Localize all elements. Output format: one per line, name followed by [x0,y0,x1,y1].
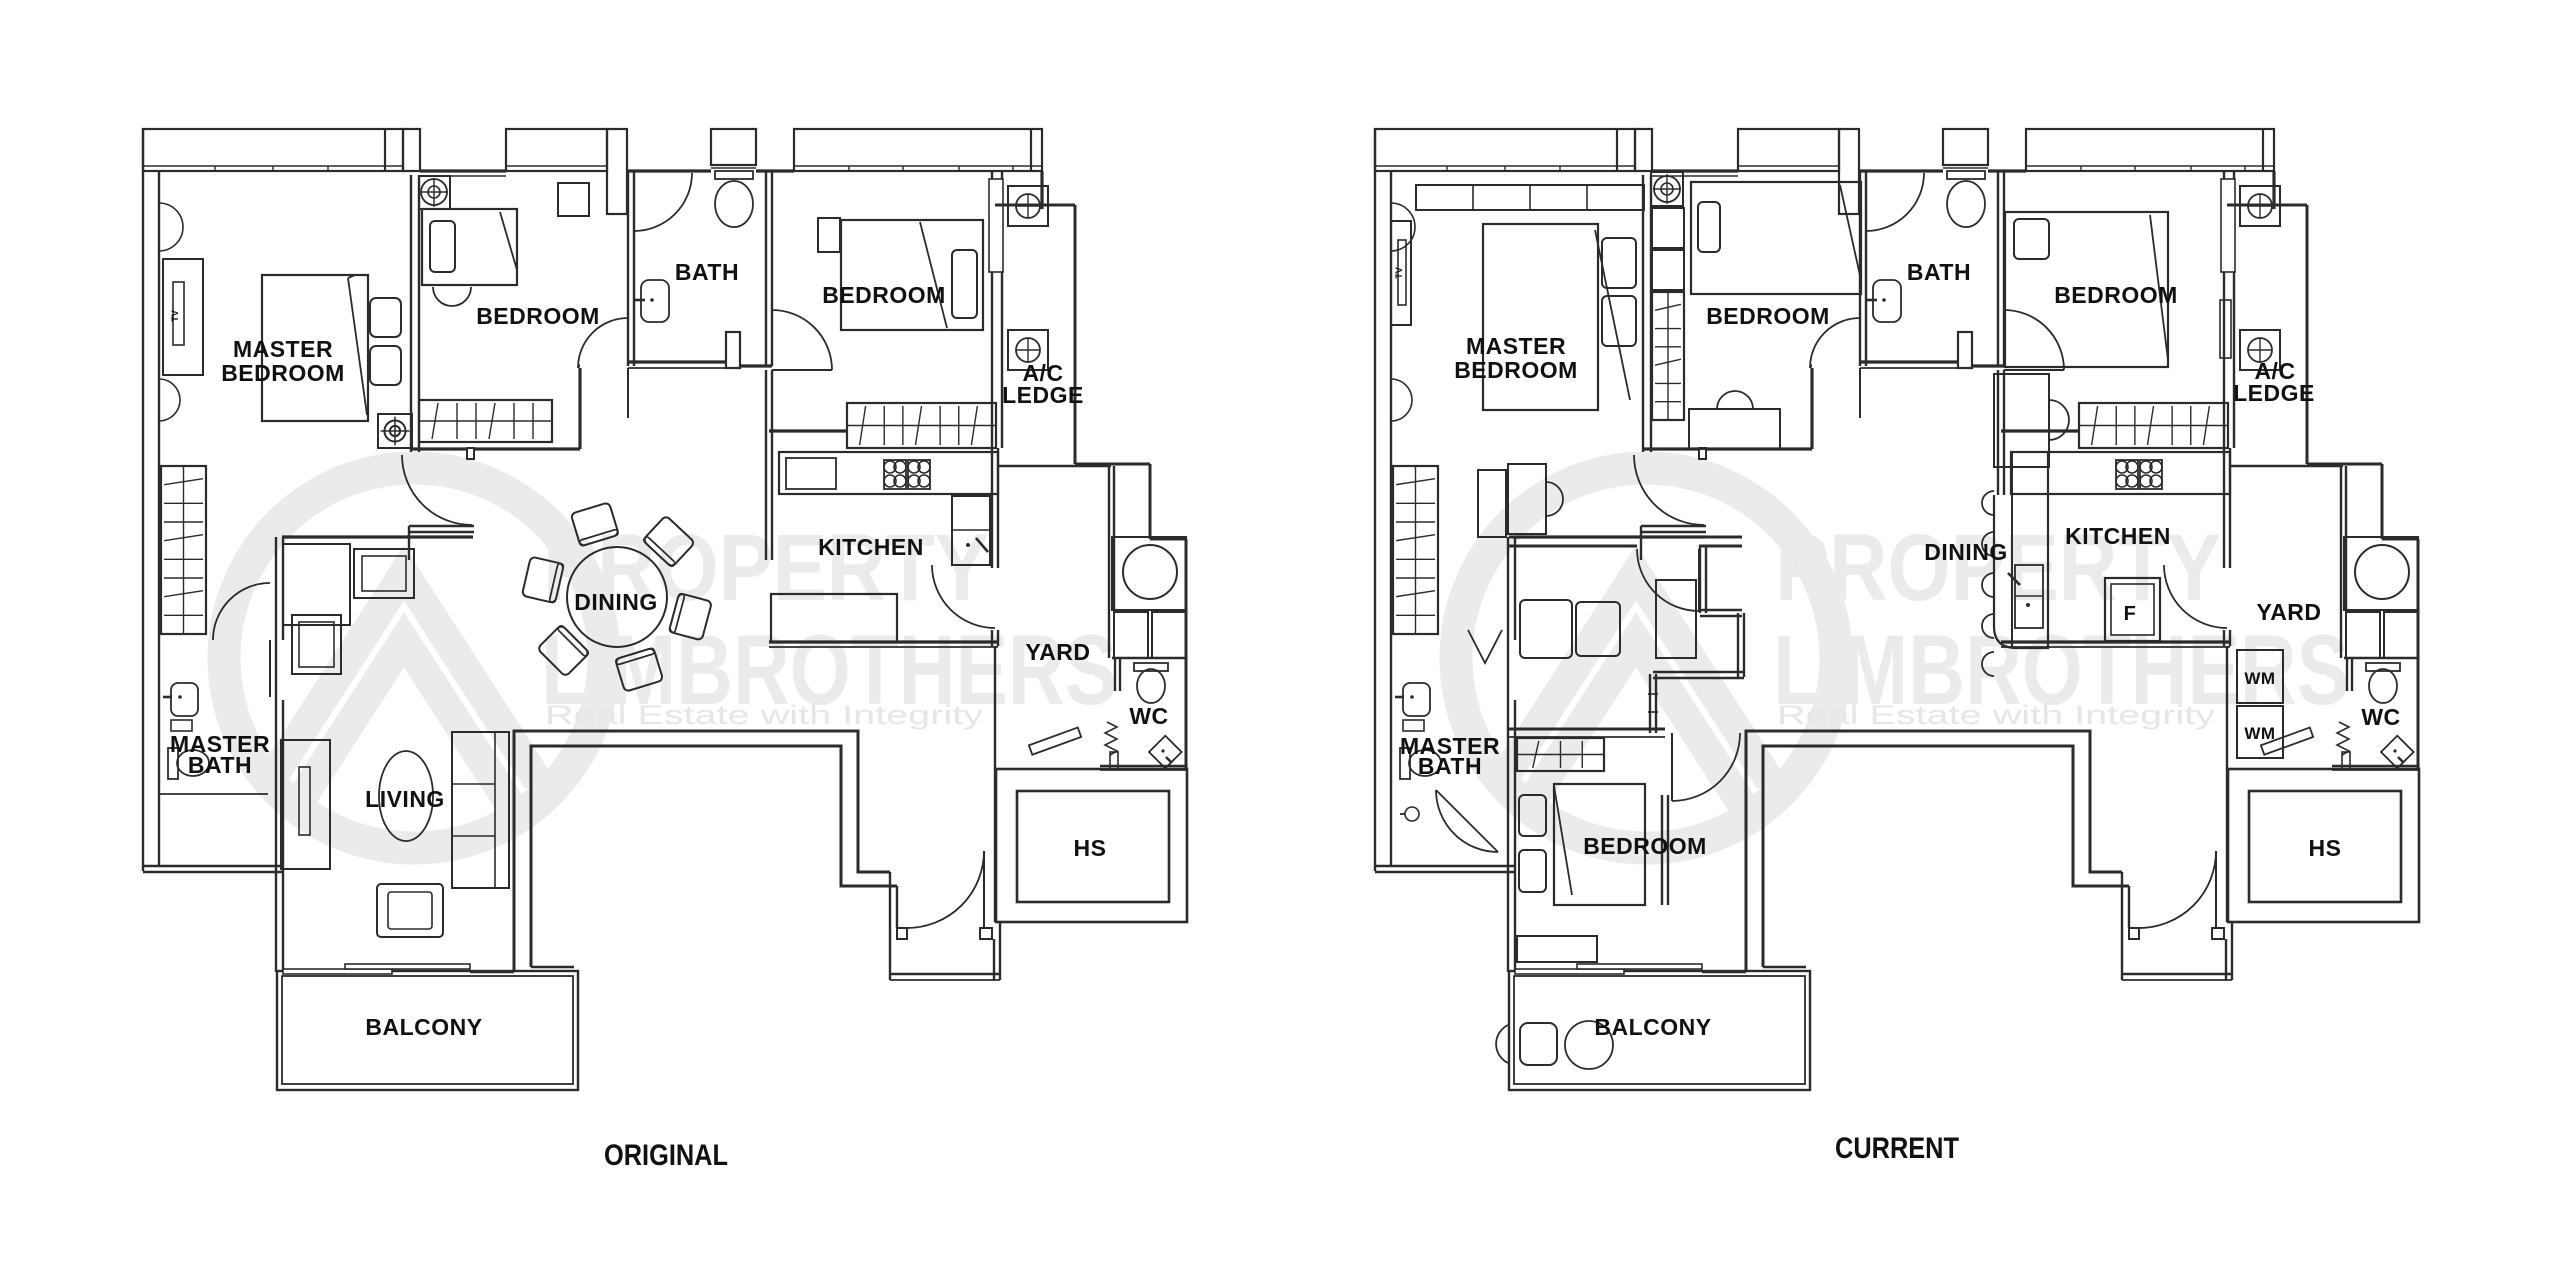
svg-text:F: F [2124,603,2137,625]
svg-text:KITCHEN: KITCHEN [818,534,924,560]
svg-text:BEDROOM: BEDROOM [221,360,345,386]
svg-text:TV: TV [170,310,180,322]
svg-text:LIVING: LIVING [365,786,445,812]
svg-text:MASTER: MASTER [1466,333,1566,359]
svg-text:LEDGE: LEDGE [2233,380,2315,406]
svg-text:BALCONY: BALCONY [1594,1014,1711,1040]
svg-text:WC: WC [2361,704,2400,730]
svg-text:DINING: DINING [1924,539,2008,565]
svg-text:Real Estate with Integrity: Real Estate with Integrity [1777,700,2216,730]
svg-text:BATH: BATH [675,259,739,285]
svg-text:MASTER: MASTER [233,336,333,362]
svg-text:BATH: BATH [1418,753,1482,779]
svg-text:YARD: YARD [1025,639,1090,665]
svg-text:YARD: YARD [2256,599,2321,625]
svg-text:BEDROOM: BEDROOM [1454,357,1578,383]
svg-text:BALCONY: BALCONY [365,1014,482,1040]
svg-text:WM: WM [2244,724,2275,743]
svg-text:BEDROOM: BEDROOM [1583,833,1707,859]
svg-text:HS: HS [2309,835,2342,861]
svg-text:Real Estate with Integrity: Real Estate with Integrity [545,700,984,730]
svg-text:BEDROOM: BEDROOM [1706,303,1830,329]
svg-text:ORIGINAL: ORIGINAL [604,1139,728,1172]
svg-text:DINING: DINING [574,589,658,615]
svg-text:BATH: BATH [1907,259,1971,285]
svg-text:BEDROOM: BEDROOM [476,303,600,329]
svg-text:BEDROOM: BEDROOM [2054,282,2178,308]
svg-text:CURRENT: CURRENT [1835,1132,1959,1165]
svg-text:WC: WC [1129,703,1168,729]
svg-text:TV: TV [1394,267,1404,279]
svg-text:BEDROOM: BEDROOM [822,282,946,308]
svg-text:KITCHEN: KITCHEN [2065,523,2171,549]
svg-text:HS: HS [1074,835,1107,861]
svg-text:BATH: BATH [188,752,252,778]
svg-text:LEDGE: LEDGE [1002,382,1084,408]
svg-text:WM: WM [2244,669,2275,688]
